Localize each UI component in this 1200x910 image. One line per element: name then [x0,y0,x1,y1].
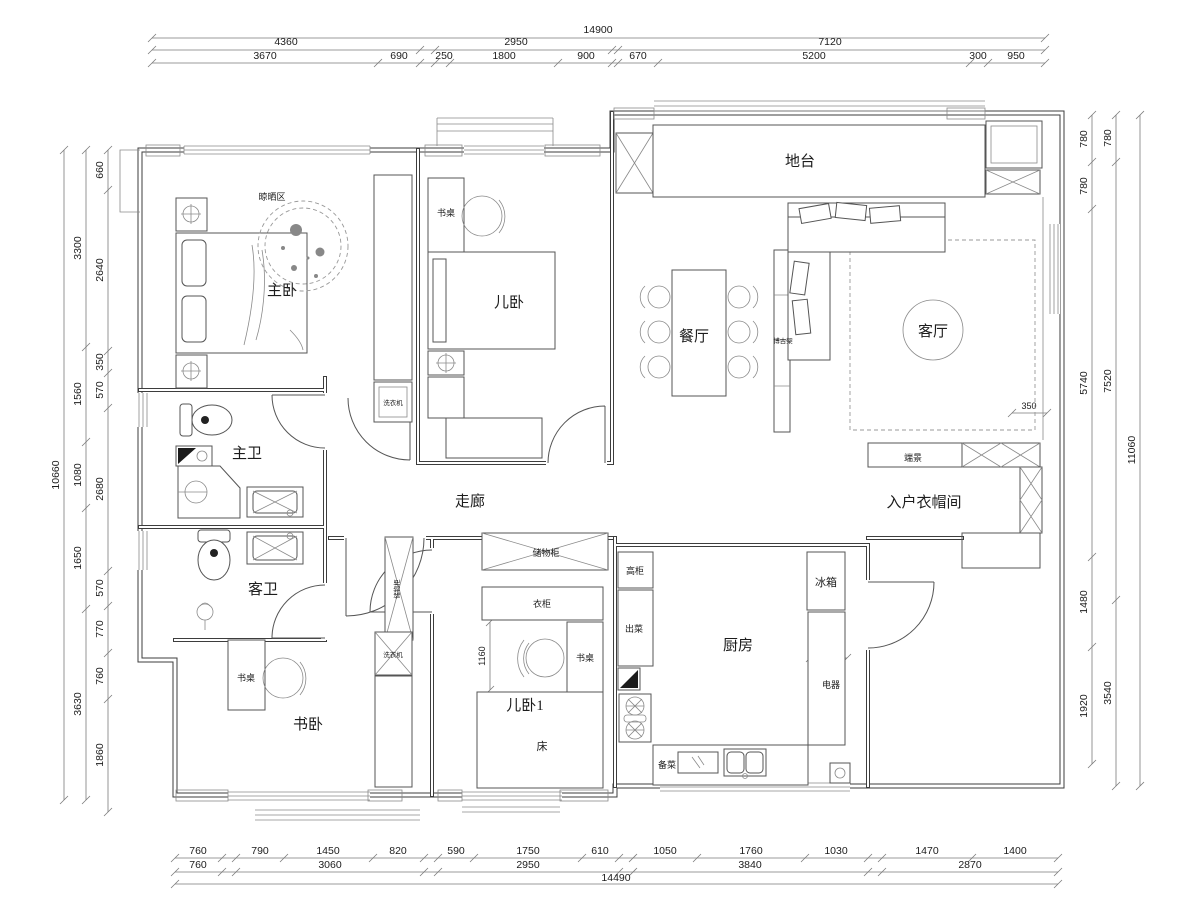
dim-right-inner [1088,111,1096,768]
corner-unit [618,668,640,690]
label-washer-study: 洗衣机 [383,650,403,659]
dim-label: 14900 [583,24,612,36]
pillow [433,259,446,342]
dim-top-row3 [148,59,1049,67]
platform-cabinet [986,121,1042,194]
appliance-counter [808,612,845,745]
label-drying-area: 晾晒区 [258,191,285,202]
dim-label: 660 [94,161,106,179]
toilet [180,404,232,436]
dim-label: 1920 [1078,694,1090,718]
dim-label: 350 [1021,401,1036,411]
dim-label: 5200 [802,50,826,62]
dim-label: 900 [577,50,595,62]
dim-label: 3540 [1102,681,1114,705]
pillow [182,240,206,286]
nightstand [176,355,207,388]
label-study-bedroom: 书卧 [293,716,323,733]
dim-label: 7520 [1102,369,1114,393]
dim-label: 2680 [94,477,106,501]
dim-label: 3300 [72,236,84,260]
label-platform: 地台 [785,153,815,170]
dim-label: 780 [1078,177,1090,195]
label-kids-desk: 书桌 [437,207,455,218]
door-master-bath [272,395,325,448]
dim-label: 1400 [1003,845,1027,857]
dim-label: 3630 [72,692,84,716]
kids1-furniture [477,587,603,788]
label-washer-master: 洗衣机 [383,398,403,407]
dim-label: 1860 [94,743,106,767]
corner-shower [178,466,240,518]
study-wardrobe [375,676,412,787]
toilet [198,530,230,580]
label-corridor: 走廊 [455,493,485,510]
column-box [616,133,653,193]
kids-wardrobe-2 [446,418,542,458]
dim-label: 1650 [72,546,84,570]
dim-label: 1450 [316,845,340,857]
shoe-cabinet [962,533,1040,568]
chair [462,196,502,236]
chair [648,321,670,343]
dim-label: 7120 [818,36,842,48]
dim-label: 610 [591,845,609,857]
label-master-bath: 主卫 [232,445,262,462]
label-storage-kids1: 储物柜 [532,547,559,558]
dim-label: 770 [94,620,106,638]
label-kids1-desk: 书桌 [576,652,594,663]
platform-window [654,101,985,111]
dim-label: 250 [435,50,453,62]
label-serving: 出菜 [625,623,643,634]
nightstand [428,351,464,375]
kitchen-corner-fixture [830,763,850,783]
dim-label: 1030 [824,845,848,857]
dim-label: 570 [94,381,106,399]
bay-window [437,118,553,146]
label-storage-corridor: 储物柜 [392,579,401,599]
dim-label: 3840 [738,859,762,871]
dim-label: 780 [1102,129,1114,147]
master-wardrobe [374,175,412,380]
dim-label: 350 [94,353,106,371]
nightstand [176,198,207,231]
chair [728,356,750,378]
dim-label: 11060 [1126,436,1138,465]
label-appliances: 电器 [822,679,840,690]
chair [728,286,750,308]
dim-desk-1160 [486,618,494,694]
label-bed: 床 [537,739,548,753]
dim-label: 820 [389,845,407,857]
label-entry-cloakroom: 入户衣帽间 [886,494,961,511]
label-prep: 备菜 [658,759,676,770]
pillow [182,296,206,342]
label-living: 客厅 [918,323,948,340]
platform-area [653,125,985,197]
floor-plan-page: 14900 4360 2950 7120 3670 690 250 1800 9… [0,0,1200,910]
living-furniture [788,197,1043,440]
label-wardrobe: 衣柜 [533,598,551,609]
dim-label: 1760 [739,845,763,857]
dim-label: 790 [251,845,269,857]
kids-bed [428,252,555,349]
dim-label: 3060 [318,859,342,871]
dim-label: 570 [94,579,106,597]
kids-wardrobe-1 [428,377,464,418]
dim-label: 590 [447,845,465,857]
dim-label: 950 [1007,50,1025,62]
floor-drain [197,603,213,630]
dim-label: 2870 [958,859,982,871]
balcony-lines [462,807,560,812]
dim-label: 1800 [492,50,516,62]
dim-label: 1480 [1078,590,1090,614]
chair [526,639,564,677]
balcony-lines [255,810,420,820]
dim-label: 2950 [504,36,528,48]
guest-bath-fixtures [197,530,303,630]
end-view-cabinet [868,443,1042,533]
dim-label: 1560 [72,382,84,406]
label-study-desk: 书桌 [237,672,255,683]
door-kids-bedroom [548,406,605,463]
dim-label: 670 [629,50,647,62]
chair [263,658,303,698]
dim-label: 1080 [72,463,84,487]
dim-label: 2640 [94,258,106,282]
label-kids-bedroom1: 儿卧1 [506,697,544,714]
dim-label: 1470 [915,845,939,857]
dim-label: 2950 [516,859,540,871]
label-kids-bedroom: 儿卧 [494,294,524,311]
master-bedroom-furniture [176,198,348,388]
double-sink [724,749,766,779]
label-display-shelf: 博古架 [773,336,793,345]
door-guest-bath [272,585,325,638]
dim-label: 14490 [601,872,630,884]
dim-label: 760 [94,667,106,685]
label-kitchen: 厨房 [723,637,753,654]
door-kitchen [868,582,934,648]
dim-label: 3670 [253,50,277,62]
label-fridge: 冰箱 [815,575,837,589]
dim-label: 760 [189,845,207,857]
dim-label: 780 [1078,130,1090,148]
label-dining: 餐厅 [679,328,709,345]
dim-label: 5740 [1078,371,1090,395]
floor-plan-drawing: 14900 4360 2950 7120 3670 690 250 1800 9… [0,0,1200,910]
vanity [247,532,303,564]
vanity [247,487,303,517]
dim-label: 690 [390,50,408,62]
dim-label: 1750 [516,845,540,857]
label-end-view: 端景 [904,452,922,463]
dim-label: 10660 [50,460,62,489]
chair [648,356,670,378]
label-guest-bath: 客卫 [248,581,278,598]
dim-label: 760 [189,859,207,871]
dim-label: 1050 [653,845,677,857]
chair [648,286,670,308]
chair [728,321,750,343]
dim-label: 300 [969,50,987,62]
dim-label: 4360 [274,36,298,48]
cutting-board [678,752,718,773]
balcony-ledge [120,150,140,212]
stove [619,694,651,742]
wash-sink [176,446,212,466]
label-tall-cabinet: 高柜 [626,565,644,576]
label-master-bedroom: 主卧 [267,282,297,299]
dim-label: 1160 [477,646,487,665]
